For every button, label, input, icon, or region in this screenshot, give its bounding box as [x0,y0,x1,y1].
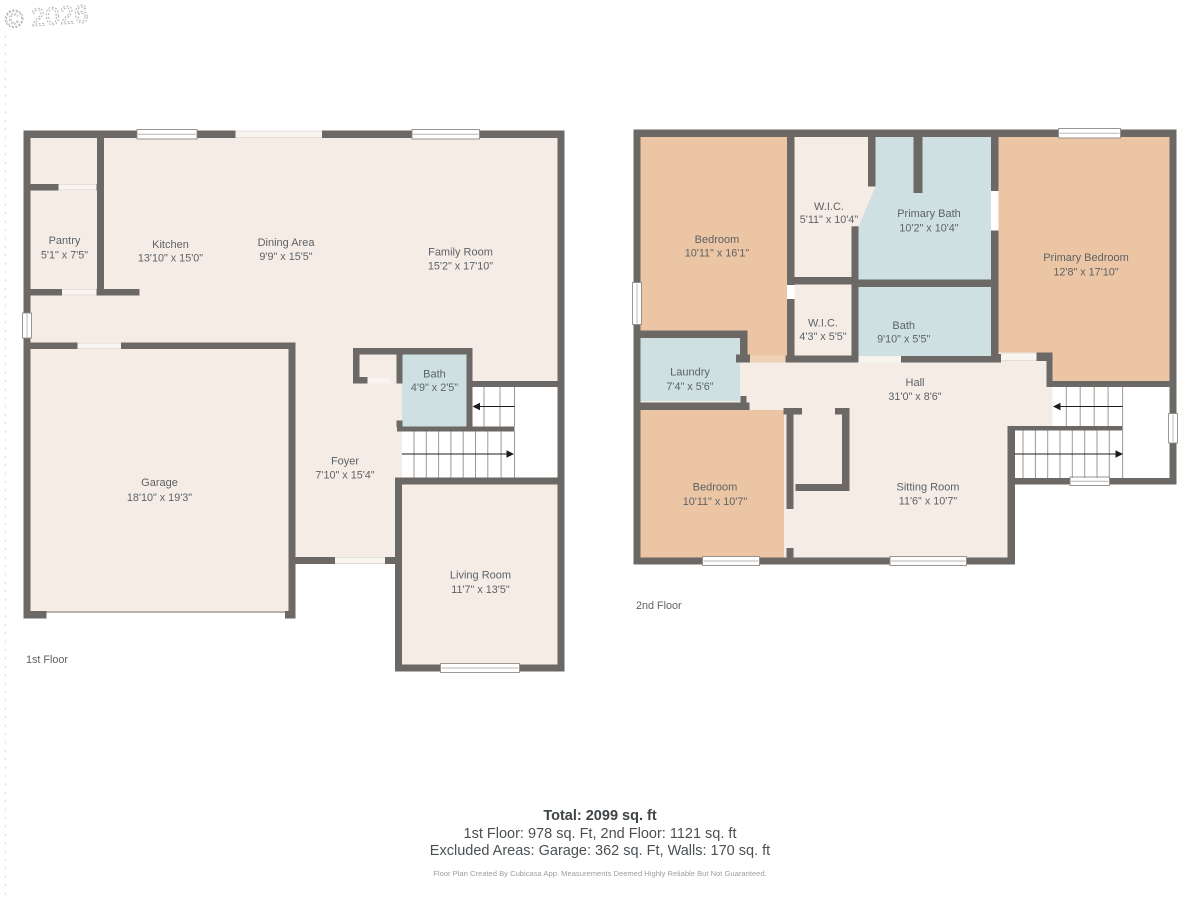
svg-text:Kitchen: Kitchen [152,239,189,251]
svg-text:31'0" x 8'6": 31'0" x 8'6" [888,391,941,403]
svg-text:Dining Area: Dining Area [258,237,316,249]
svg-text:Living Room: Living Room [450,569,511,581]
svg-text:Total: 2099 sq. ft: Total: 2099 sq. ft [543,808,657,824]
svg-text:7'4" x 5'6": 7'4" x 5'6" [666,381,713,393]
svg-text:18'10" x 19'3": 18'10" x 19'3" [127,492,192,504]
svg-text:Bedroom: Bedroom [693,481,738,493]
svg-text:4'3" x 5'5": 4'3" x 5'5" [799,331,846,343]
svg-text:Foyer: Foyer [331,455,359,467]
svg-text:9'10" x 5'5": 9'10" x 5'5" [877,334,930,346]
svg-text:Floor Plan Created By Cubicasa: Floor Plan Created By Cubicasa App. Meas… [433,869,766,878]
svg-text:W.I.C.: W.I.C. [808,317,838,329]
svg-text:Hall: Hall [906,377,925,389]
svg-text:10'11" x 10'7": 10'11" x 10'7" [683,496,748,508]
svg-text:Bedroom: Bedroom [695,234,740,246]
svg-text:10'11" x 16'1": 10'11" x 16'1" [685,247,750,259]
svg-text:5'11" x 10'4": 5'11" x 10'4" [800,214,859,226]
svg-text:Bath: Bath [892,320,915,332]
svg-text:5'1" x 7'5": 5'1" x 7'5" [41,249,88,261]
svg-text:7'10" x 15'4": 7'10" x 15'4" [315,469,374,481]
svg-text:9'9" x 15'5": 9'9" x 15'5" [259,251,312,263]
svg-text:15'2" x 17'10": 15'2" x 17'10" [428,260,493,272]
svg-text:Laundry: Laundry [670,366,710,378]
svg-text:Sitting Room: Sitting Room [897,481,960,493]
svg-text:1st Floor: 978 sq. Ft, 2nd Flo: 1st Floor: 978 sq. Ft, 2nd Floor: 1121 s… [464,826,737,842]
svg-text:Garage: Garage [141,477,178,489]
svg-text:10'2" x 10'4": 10'2" x 10'4" [899,222,958,234]
svg-text:Family Room: Family Room [428,246,493,258]
svg-text:Bath: Bath [423,368,446,380]
svg-text:11'6" x 10'7": 11'6" x 10'7" [899,495,958,507]
svg-text:13'10" x 15'0": 13'10" x 15'0" [138,252,203,264]
svg-text:Excluded Areas: Garage: 362 sq: Excluded Areas: Garage: 362 sq. Ft, Wall… [430,843,770,859]
svg-text:2nd Floor: 2nd Floor [636,600,682,612]
svg-text:© 2026: © 2026 [4,0,90,34]
svg-text:Pantry: Pantry [49,235,81,247]
svg-text:4'9" x 2'5": 4'9" x 2'5" [411,382,458,394]
svg-text:W.I.C.: W.I.C. [814,201,844,213]
svg-text:11'7" x 13'5": 11'7" x 13'5" [451,584,510,596]
svg-text:1st Floor: 1st Floor [26,654,68,666]
svg-text:12'8" x 17'10": 12'8" x 17'10" [1053,266,1118,278]
svg-text:Primary Bath: Primary Bath [897,208,961,220]
svg-text:Primary Bedroom: Primary Bedroom [1043,252,1129,264]
